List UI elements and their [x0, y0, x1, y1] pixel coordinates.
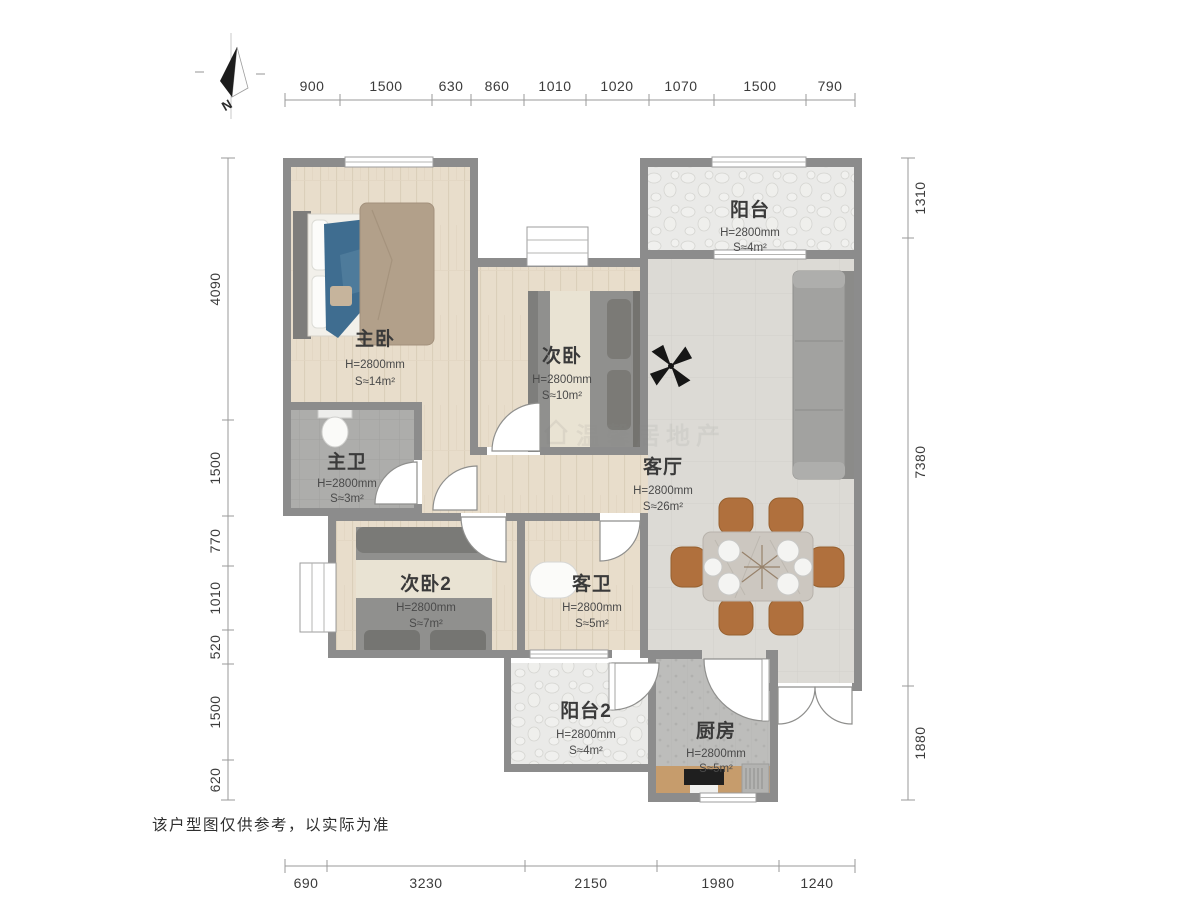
svg-text:H=2800mm: H=2800mm [562, 602, 622, 614]
svg-text:1070: 1070 [664, 78, 697, 94]
svg-text:客厅: 客厅 [643, 455, 683, 478]
svg-text:厨房: 厨房 [696, 719, 736, 742]
north-arrow-icon: N [195, 33, 265, 119]
entry-double-door [778, 687, 852, 724]
disclaimer-text: 该户型图仅供参考，以实际为准 [152, 816, 390, 834]
svg-text:H=2800mm: H=2800mm [532, 374, 592, 386]
floor-plan-canvas: 主卧 H=2800mm S≈14m² 次卧 H=2800mm S≈10m² 阳台… [0, 0, 1200, 900]
svg-text:1880: 1880 [912, 726, 928, 759]
master-bedroom-alcove-floor [422, 402, 470, 455]
bottom-dimension-labels: 690 3230 2150 1980 1240 [294, 875, 834, 891]
dimension-left: 4090 1500 770 1010 520 1500 620 [207, 158, 235, 800]
svg-text:H=2800mm: H=2800mm [556, 729, 616, 741]
svg-text:620: 620 [207, 768, 223, 793]
master-bed [293, 203, 434, 345]
svg-text:H=2800mm: H=2800mm [345, 359, 405, 371]
svg-text:S≈14m²: S≈14m² [355, 376, 395, 388]
balcony1-window [712, 157, 806, 167]
north-label: N [219, 96, 235, 114]
svg-text:770: 770 [207, 529, 223, 554]
floor-plan-page: 主卧 H=2800mm S≈14m² 次卧 H=2800mm S≈10m² 阳台… [0, 0, 1200, 900]
right-dimension-labels: 1310 7380 1880 [912, 181, 928, 759]
svg-text:S≈5m²: S≈5m² [699, 763, 733, 775]
svg-text:1500: 1500 [369, 78, 402, 94]
svg-text:H=2800mm: H=2800mm [396, 602, 456, 614]
svg-text:S≈7m²: S≈7m² [409, 618, 443, 630]
svg-text:H=2800mm: H=2800mm [317, 478, 377, 490]
dimension-bottom: 690 3230 2150 1980 1240 [285, 859, 855, 891]
svg-text:1980: 1980 [701, 875, 734, 891]
top-dimension-labels: 900 1500 630 860 1010 1020 1070 1500 790 [300, 78, 843, 94]
svg-text:次卧2: 次卧2 [400, 572, 452, 595]
svg-text:1010: 1010 [207, 581, 223, 614]
svg-text:S≈3m²: S≈3m² [330, 493, 364, 505]
master-bedroom-window [345, 157, 433, 167]
left-dimension-labels: 4090 1500 770 1010 520 1500 620 [207, 272, 223, 792]
dimension-top: 900 1500 630 860 1010 1020 1070 1500 790 [285, 78, 855, 107]
dimension-right: 1310 7380 1880 [901, 158, 928, 800]
svg-text:阳台: 阳台 [730, 198, 770, 221]
kitchen-window [700, 793, 756, 802]
bedroom3-bay-window [300, 563, 336, 632]
bathtub [530, 562, 578, 598]
bedroom2-bay-window [527, 227, 588, 266]
svg-text:690: 690 [294, 875, 319, 891]
balcony2-window [530, 650, 608, 658]
svg-text:1310: 1310 [912, 181, 928, 214]
svg-text:客卫: 客卫 [572, 572, 612, 595]
svg-text:H=2800mm: H=2800mm [633, 485, 693, 497]
svg-text:S≈4m²: S≈4m² [733, 242, 767, 254]
svg-text:阳台2: 阳台2 [560, 699, 612, 722]
svg-text:H=2800mm: H=2800mm [686, 748, 746, 760]
sofa [793, 271, 854, 479]
svg-text:S≈4m²: S≈4m² [569, 745, 603, 757]
svg-text:1010: 1010 [538, 78, 571, 94]
svg-text:4090: 4090 [207, 272, 223, 305]
svg-text:主卫: 主卫 [327, 451, 367, 473]
svg-text:630: 630 [439, 78, 464, 94]
svg-text:次卧: 次卧 [542, 344, 582, 367]
svg-text:1500: 1500 [207, 451, 223, 484]
svg-text:7380: 7380 [912, 445, 928, 478]
svg-text:520: 520 [207, 635, 223, 660]
svg-text:1500: 1500 [207, 695, 223, 728]
svg-text:S≈10m²: S≈10m² [542, 390, 582, 402]
svg-text:860: 860 [485, 78, 510, 94]
svg-text:3230: 3230 [409, 875, 442, 891]
watermark-text: 温馨居地产 [576, 422, 726, 450]
svg-text:1020: 1020 [600, 78, 633, 94]
svg-text:1240: 1240 [800, 875, 833, 891]
svg-text:S≈5m²: S≈5m² [575, 618, 609, 630]
svg-text:790: 790 [818, 78, 843, 94]
svg-text:主卧: 主卧 [355, 328, 395, 350]
svg-text:900: 900 [300, 78, 325, 94]
svg-text:2150: 2150 [574, 875, 607, 891]
svg-text:1500: 1500 [743, 78, 776, 94]
svg-text:S≈26m²: S≈26m² [643, 501, 683, 513]
svg-text:H=2800mm: H=2800mm [720, 227, 780, 239]
